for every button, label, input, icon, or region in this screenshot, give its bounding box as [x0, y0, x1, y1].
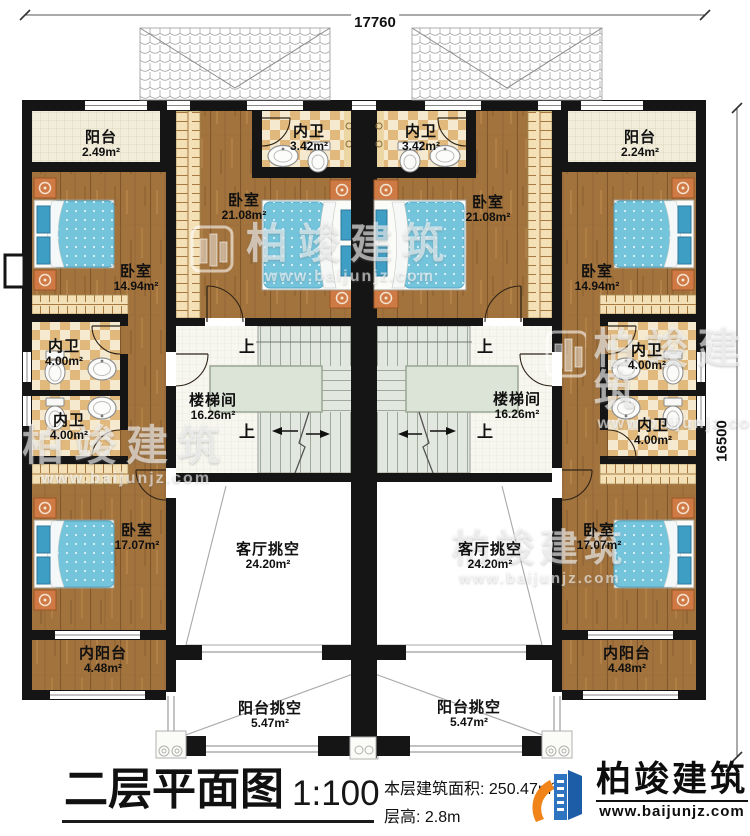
room-name: 阳台挑空: [238, 701, 302, 717]
room-area: 21.08m²: [222, 209, 267, 222]
room-area: 4.00m²: [45, 355, 83, 368]
floor-height-label: 层高:: [384, 809, 420, 826]
room-name: 内阳台: [603, 646, 651, 662]
room-area: 14.94m²: [575, 280, 620, 293]
room-name: 内卫: [290, 124, 328, 140]
dimension-height-label: 16500: [714, 417, 731, 465]
room-label-bedroom17-left: 卧室 17.07m²: [115, 523, 160, 552]
dimension-width-label: 17760: [351, 14, 399, 31]
room-area: 24.20m²: [458, 558, 522, 571]
room-label-living-void-right: 客厅挑空 24.20m²: [458, 542, 522, 571]
company-url: www.baijunjz.com: [596, 800, 748, 820]
room-label-bedroom1494-left: 卧室 14.94m²: [114, 264, 159, 293]
room-area: 5.47m²: [437, 716, 501, 729]
room-label-bedroom21-right: 卧室 21.08m²: [466, 195, 511, 224]
room-area: 4.00m²: [50, 429, 88, 442]
room-area: 5.47m²: [238, 717, 302, 730]
room-area: 4.00m²: [634, 434, 672, 447]
room-area: 2.49m²: [82, 146, 120, 159]
stair-up-label: 上: [239, 333, 255, 357]
stair-up-label: 上: [239, 418, 255, 442]
room-label-bedroom17-right: 卧室 17.07m²: [577, 523, 622, 552]
page-title: 二层平面图: [64, 768, 284, 812]
room-name: 内卫: [628, 343, 666, 359]
drawing-scale: 1:100: [292, 776, 380, 811]
room-label-bath400-right-2: 内卫 4.00m²: [634, 418, 672, 447]
room-name: 内卫: [45, 339, 83, 355]
room-name: 内卫: [634, 418, 672, 434]
room-area: 4.48m²: [79, 662, 127, 675]
room-name: 卧室: [222, 193, 267, 209]
room-label-bath342-left: 内卫 3.42m²: [290, 124, 328, 153]
room-area: 16.26m²: [189, 409, 237, 422]
floor-height-value: 2.8m: [425, 809, 461, 826]
room-area: 4.00m²: [628, 359, 666, 372]
room-area: 14.94m²: [114, 280, 159, 293]
company-logo: 柏竣建筑 www.baijunjz.com: [528, 762, 748, 828]
room-area: 16.26m²: [493, 408, 541, 421]
room-label-stairwell-left: 楼梯间 16.26m²: [189, 393, 237, 422]
room-area: 24.20m²: [236, 558, 300, 571]
room-name: 客厅挑空: [458, 542, 522, 558]
company-logo-icon: [528, 762, 590, 828]
room-area: 3.42m²: [402, 140, 440, 153]
room-name: 卧室: [115, 523, 160, 539]
room-label-balcony-void-right: 阳台挑空 5.47m²: [437, 700, 501, 729]
room-name: 卧室: [466, 195, 511, 211]
room-name: 卧室: [575, 264, 620, 280]
stair-up-label: 上: [477, 333, 493, 357]
stair-up-label: 上: [477, 418, 493, 442]
room-name: 卧室: [577, 523, 622, 539]
room-label-bath400-right-1: 内卫 4.00m²: [628, 343, 666, 372]
room-label-bedroom1494-right: 卧室 14.94m²: [575, 264, 620, 293]
floor-height-info: 层高: 2.8m: [384, 803, 460, 827]
room-area: 17.07m²: [115, 539, 160, 552]
room-name: 楼梯间: [493, 392, 541, 408]
title-underline: [62, 820, 374, 823]
room-label-bedroom21-left: 卧室 21.08m²: [222, 193, 267, 222]
company-name: 柏竣建筑: [596, 762, 748, 799]
room-name: 内卫: [50, 413, 88, 429]
room-name: 阳台: [621, 130, 659, 146]
title-block: 二层平面图 1:100 本层建筑面积: 250.47m² 层高: 2.8m: [0, 762, 750, 836]
room-label-living-void-left: 客厅挑空 24.20m²: [236, 542, 300, 571]
room-name: 卧室: [114, 264, 159, 280]
floor-area-label: 本层建筑面积:: [384, 781, 484, 798]
floor-plan-page: 17760 16500 柏竣建筑 www.baijunjz.com 柏竣建筑 w…: [0, 0, 750, 836]
room-label-balcony-left: 阳台 2.49m²: [82, 130, 120, 159]
room-name: 内阳台: [79, 646, 127, 662]
room-label-bath400-left-1: 内卫 4.00m²: [45, 339, 83, 368]
room-area: 21.08m²: [466, 211, 511, 224]
room-label-bath342-right: 内卫 3.42m²: [402, 124, 440, 153]
room-label-inner-balcony-left: 内阳台 4.48m²: [79, 646, 127, 675]
room-name: 阳台: [82, 130, 120, 146]
room-label-stairwell-right: 楼梯间 16.26m²: [493, 392, 541, 421]
room-label-bath400-left-2: 内卫 4.00m²: [50, 413, 88, 442]
room-label-inner-balcony-right: 内阳台 4.48m²: [603, 646, 651, 675]
room-name: 客厅挑空: [236, 542, 300, 558]
room-label-balcony-void-left: 阳台挑空 5.47m²: [238, 701, 302, 730]
room-area: 4.48m²: [603, 662, 651, 675]
room-area: 3.42m²: [290, 140, 328, 153]
room-area: 17.07m²: [577, 539, 622, 552]
room-name: 内卫: [402, 124, 440, 140]
room-label-balcony-right: 阳台 2.24m²: [621, 130, 659, 159]
room-name: 楼梯间: [189, 393, 237, 409]
room-area: 2.24m²: [621, 146, 659, 159]
room-name: 阳台挑空: [437, 700, 501, 716]
